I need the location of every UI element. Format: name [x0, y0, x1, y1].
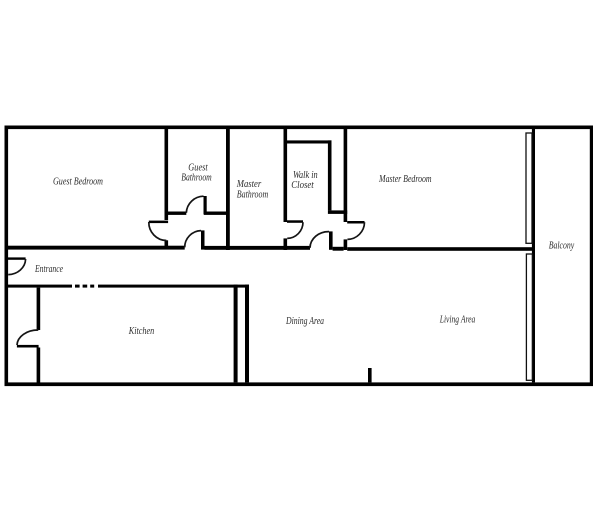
svg-text:Entrance: Entrance	[34, 264, 63, 275]
svg-text:Master: Master	[236, 179, 261, 190]
svg-text:Bathroom: Bathroom	[181, 173, 212, 184]
svg-text:Guest Bedroom: Guest Bedroom	[53, 177, 103, 188]
svg-text:Master Bedroom: Master Bedroom	[378, 174, 431, 185]
svg-text:Kitchen: Kitchen	[128, 326, 154, 337]
svg-text:Dining Area: Dining Area	[285, 316, 324, 327]
svg-text:Balcony: Balcony	[549, 241, 575, 252]
svg-text:Closet: Closet	[291, 180, 314, 191]
svg-text:Bathroom: Bathroom	[237, 190, 269, 201]
svg-text:Living Area: Living Area	[439, 314, 475, 325]
